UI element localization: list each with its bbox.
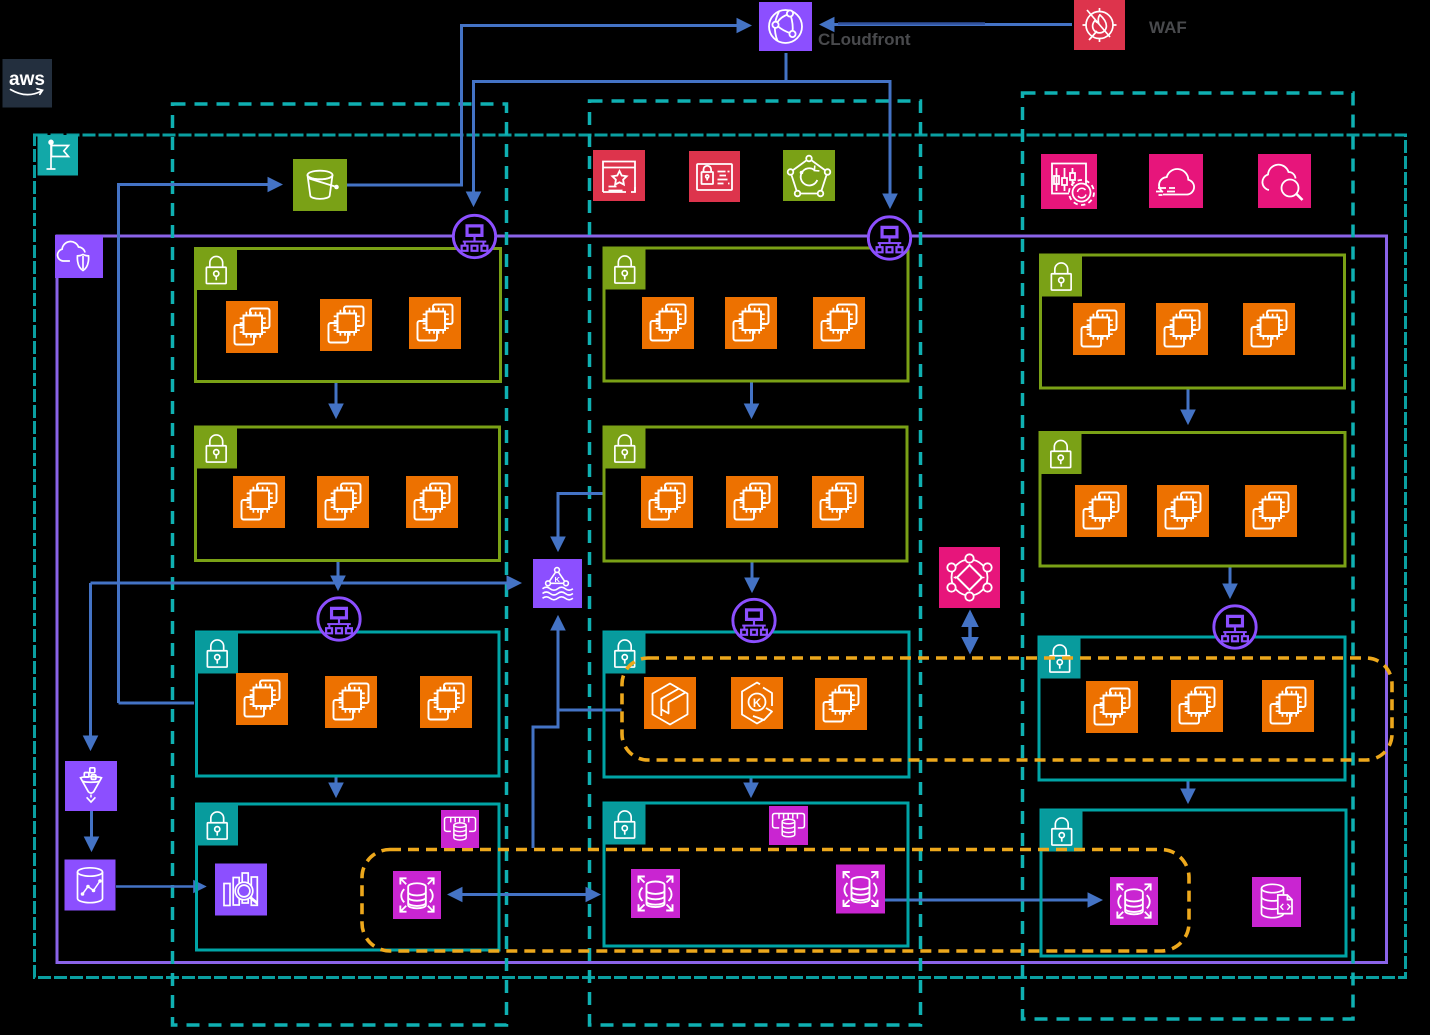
- svg-text:K: K: [753, 698, 762, 710]
- svg-text:K: K: [554, 575, 560, 584]
- svg-text:CLoudfront: CLoudfront: [818, 30, 911, 49]
- svg-text:WAF: WAF: [1149, 18, 1187, 37]
- svg-text:aws: aws: [9, 69, 45, 90]
